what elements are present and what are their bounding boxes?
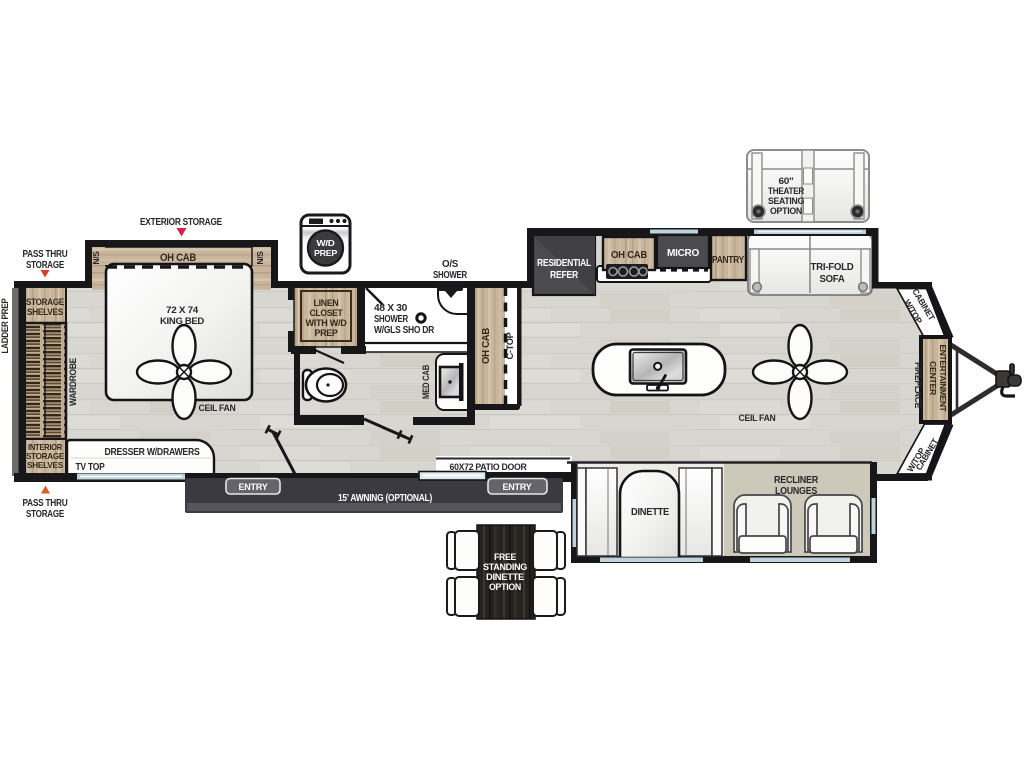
svg-text:W/GLS SHO DR: W/GLS SHO DR — [374, 325, 435, 336]
svg-text:SOFA: SOFA — [820, 273, 846, 285]
svg-text:OPTION: OPTION — [489, 582, 521, 593]
svg-text:CLOSET: CLOSET — [310, 308, 344, 318]
svg-text:EXTERIOR STORAGE: EXTERIOR STORAGE — [140, 216, 222, 228]
svg-text:RECLINER: RECLINER — [774, 475, 819, 486]
svg-text:WITH W/D: WITH W/D — [306, 318, 348, 328]
svg-text:CEIL FAN: CEIL FAN — [199, 403, 236, 413]
svg-text:ENTERTAINMENT: ENTERTAINMENT — [938, 345, 948, 413]
svg-text:W/D: W/D — [317, 238, 335, 248]
svg-text:C-TOP: C-TOP — [505, 332, 516, 360]
svg-text:STORAGE: STORAGE — [26, 260, 65, 271]
svg-text:SHOWER: SHOWER — [374, 314, 409, 325]
svg-text:O/S: O/S — [442, 259, 459, 270]
svg-text:REFER: REFER — [550, 269, 579, 281]
svg-text:CENTER: CENTER — [928, 361, 938, 395]
svg-text:PASS THRU: PASS THRU — [23, 249, 68, 260]
svg-text:N/S: N/S — [255, 251, 265, 265]
svg-text:LADDER PREP: LADDER PREP — [0, 298, 10, 353]
svg-text:PREP: PREP — [315, 328, 338, 338]
svg-text:MED CAB: MED CAB — [421, 364, 431, 399]
svg-text:48 X 30: 48 X 30 — [374, 303, 408, 314]
svg-text:PREP: PREP — [314, 248, 338, 258]
svg-text:OPTION: OPTION — [770, 206, 802, 217]
svg-text:60X72 PATIO DOOR: 60X72 PATIO DOOR — [450, 462, 527, 473]
svg-text:15' AWNING (OPTIONAL): 15' AWNING (OPTIONAL) — [338, 492, 432, 504]
svg-text:DRESSER W/DRAWERS: DRESSER W/DRAWERS — [105, 446, 200, 458]
svg-text:72 X 74: 72 X 74 — [166, 305, 199, 316]
svg-text:OH CAB: OH CAB — [611, 250, 647, 261]
svg-text:SHOWER: SHOWER — [433, 270, 468, 281]
svg-text:ENTRY: ENTRY — [239, 482, 269, 493]
svg-text:N/S: N/S — [91, 251, 101, 265]
svg-text:SHELVES: SHELVES — [27, 307, 63, 317]
svg-text:LINEN: LINEN — [314, 298, 339, 308]
svg-text:STORAGE: STORAGE — [26, 297, 64, 307]
svg-text:WARDROBE: WARDROBE — [68, 358, 79, 406]
svg-text:TV TOP: TV TOP — [76, 461, 105, 473]
svg-text:SHELVES: SHELVES — [27, 460, 64, 470]
svg-text:DINETTE: DINETTE — [631, 506, 669, 518]
svg-text:STORAGE: STORAGE — [26, 509, 65, 520]
svg-text:MICRO: MICRO — [667, 247, 699, 259]
svg-text:RESIDENTIAL: RESIDENTIAL — [537, 257, 592, 269]
svg-text:PASS THRU: PASS THRU — [23, 498, 68, 509]
svg-text:OH CAB: OH CAB — [160, 252, 196, 264]
svg-text:OH CAB: OH CAB — [481, 328, 492, 364]
svg-text:ENTRY: ENTRY — [503, 482, 533, 493]
svg-text:TRI-FOLD: TRI-FOLD — [811, 261, 855, 273]
svg-text:FIREPLACE: FIREPLACE — [912, 362, 923, 408]
svg-text:CEIL FAN: CEIL FAN — [739, 413, 776, 424]
svg-text:PANTRY: PANTRY — [712, 255, 745, 266]
